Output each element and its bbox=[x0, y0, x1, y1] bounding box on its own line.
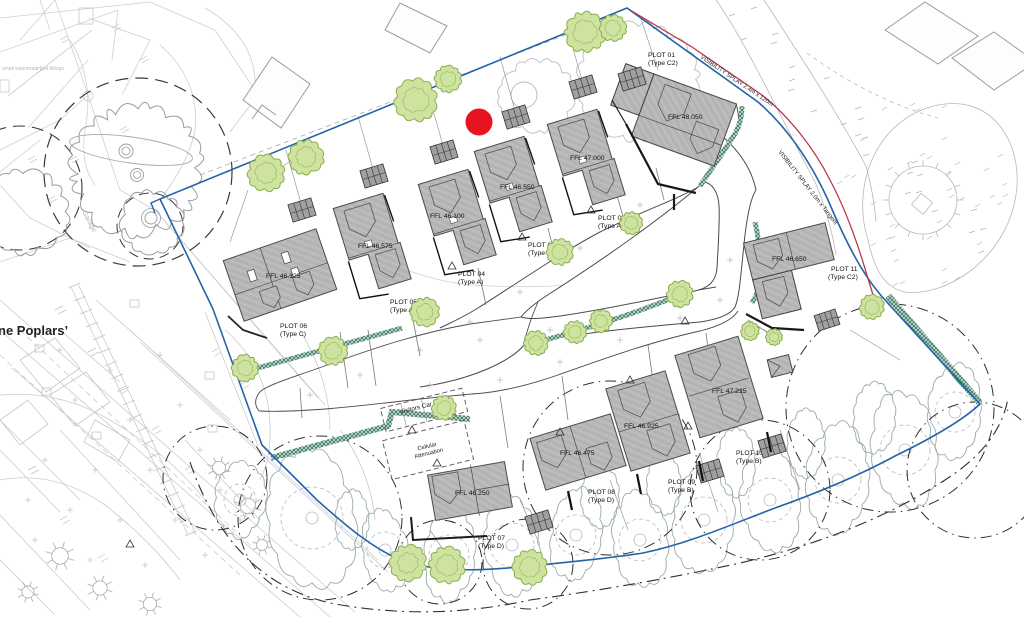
svg-text:small watermark and fittings: small watermark and fittings bbox=[2, 66, 64, 72]
svg-text:(Type C2): (Type C2) bbox=[828, 274, 858, 281]
svg-text:PLOT 09: PLOT 09 bbox=[668, 479, 695, 486]
svg-text:FFL 47.225: FFL 47.225 bbox=[712, 388, 747, 395]
svg-text:FFL 46.475: FFL 46.475 bbox=[560, 450, 595, 457]
svg-text:FFL 46.250: FFL 46.250 bbox=[455, 490, 490, 497]
svg-text:(Type C): (Type C) bbox=[280, 331, 306, 338]
svg-text:ne Poplars’: ne Poplars’ bbox=[0, 323, 68, 338]
svg-text:FFL 46.650: FFL 46.650 bbox=[772, 256, 807, 263]
svg-text:PLOT 11: PLOT 11 bbox=[831, 266, 858, 273]
svg-text:FFL 46.925: FFL 46.925 bbox=[624, 423, 659, 430]
svg-text:FFL 48.050: FFL 48.050 bbox=[668, 114, 703, 121]
svg-text:(Type D): (Type D) bbox=[588, 497, 614, 504]
svg-text:FFL 46.575: FFL 46.575 bbox=[358, 243, 393, 250]
svg-text:(Type C2): (Type C2) bbox=[648, 60, 678, 67]
svg-text:(Type B): (Type B) bbox=[736, 458, 762, 465]
svg-text:PLOT 01: PLOT 01 bbox=[648, 52, 675, 59]
svg-text:PLOT 06: PLOT 06 bbox=[280, 323, 307, 330]
svg-text:FFL 46.550: FFL 46.550 bbox=[500, 184, 535, 191]
svg-text:FFL 47.000: FFL 47.000 bbox=[570, 155, 605, 162]
svg-text:FFL 46.100: FFL 46.100 bbox=[430, 213, 465, 220]
svg-text:(Type D): (Type D) bbox=[478, 543, 504, 550]
svg-text:(Type A): (Type A) bbox=[458, 279, 483, 286]
svg-text:(Type B): (Type B) bbox=[668, 487, 694, 494]
svg-text:PLOT 08: PLOT 08 bbox=[588, 489, 615, 496]
svg-text:FFL 46.125: FFL 46.125 bbox=[266, 273, 301, 280]
svg-text:PLOT 10: PLOT 10 bbox=[736, 450, 763, 457]
svg-text:PLOT 04: PLOT 04 bbox=[458, 271, 485, 278]
